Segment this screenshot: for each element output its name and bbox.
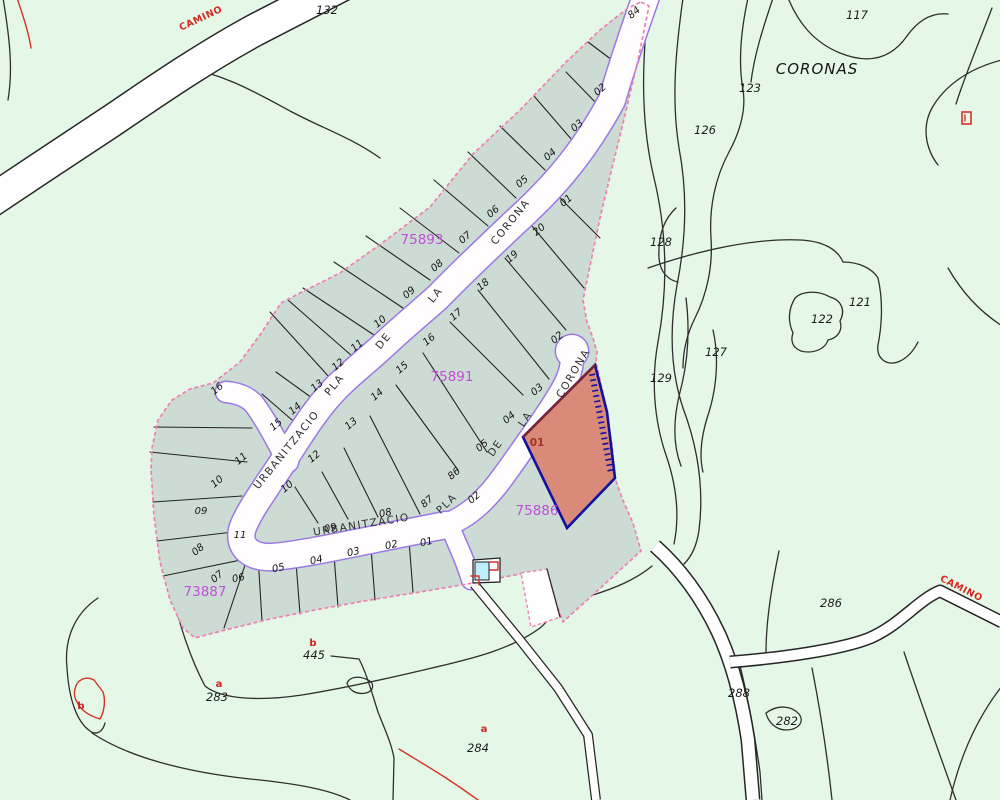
terrain-number: 123 bbox=[739, 81, 761, 95]
terrain-number: 117 bbox=[846, 8, 869, 22]
terrain-number: 126 bbox=[694, 123, 716, 137]
building-pool-icon bbox=[475, 562, 489, 580]
terrain-number: 127 bbox=[705, 345, 728, 359]
plot-number: 11 bbox=[234, 530, 247, 541]
road-name-camino-topleft: CAMINO bbox=[178, 4, 225, 34]
terrain-number: 132 bbox=[316, 3, 338, 17]
highlighted-plot-number: 01 bbox=[530, 437, 545, 449]
terrain-number: 284 bbox=[467, 741, 489, 755]
terrain-number: 122 bbox=[811, 312, 833, 326]
terrain-number: 286 bbox=[820, 596, 842, 610]
sub-parcel-a: a bbox=[216, 679, 223, 690]
terrain-number: 129 bbox=[650, 371, 672, 385]
terrain-number: 282 bbox=[776, 714, 798, 728]
terrain-number: 283 bbox=[206, 690, 228, 704]
terrain-number: 121 bbox=[849, 295, 871, 309]
terrain-number: 445 bbox=[303, 648, 325, 662]
map-viewport: CAMINOCAMINOCORONAS132117123126128121122… bbox=[0, 0, 1000, 800]
cadastral-map[interactable]: CAMINOCAMINOCORONAS132117123126128121122… bbox=[0, 0, 1000, 800]
building-icon bbox=[962, 112, 971, 124]
terrain-number: 128 bbox=[650, 235, 672, 249]
parcel-id-75891: 75891 bbox=[431, 369, 474, 385]
sub-parcel-a: a bbox=[481, 724, 488, 735]
region-name-coronas: CORONAS bbox=[776, 60, 859, 78]
parcel-id-75886: 75886 bbox=[516, 503, 559, 519]
sub-parcel-b: b bbox=[77, 701, 84, 712]
parcel-id-75893: 75893 bbox=[401, 232, 444, 248]
plot-number: 09 bbox=[195, 506, 208, 517]
sub-parcel-b: b bbox=[309, 638, 316, 649]
terrain-number: 288 bbox=[728, 686, 750, 700]
parcel-id-73887: 73887 bbox=[184, 584, 227, 600]
